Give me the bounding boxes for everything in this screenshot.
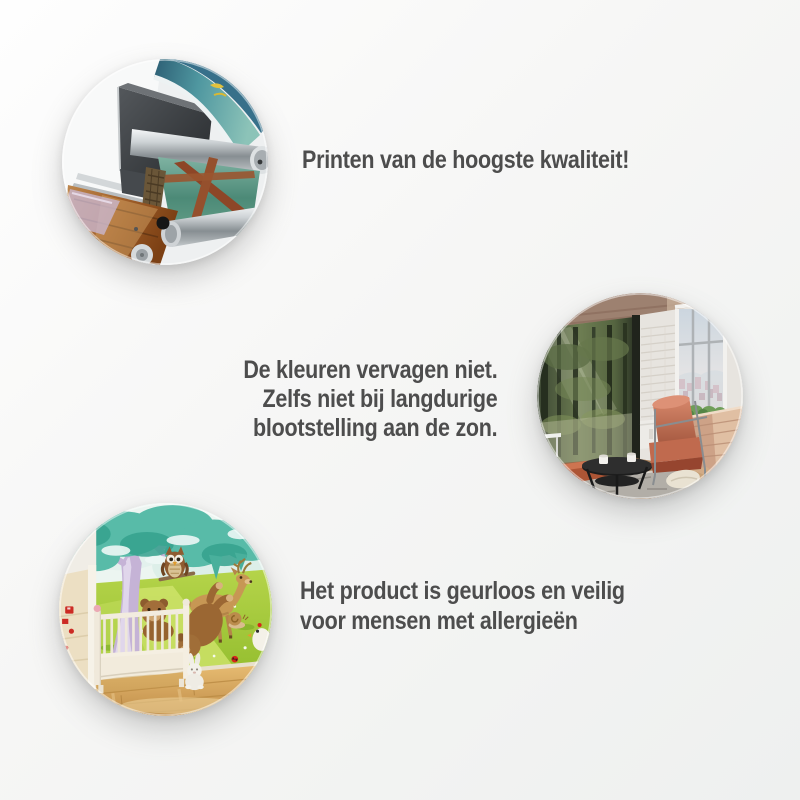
left-wall-shelf bbox=[59, 503, 96, 699]
window-frame-post bbox=[632, 315, 640, 463]
caption-line: De kleuren vervagen niet. bbox=[243, 356, 497, 385]
forest-wall-mural bbox=[537, 317, 634, 465]
living-room-illustration bbox=[537, 293, 743, 499]
product-benefits-graphic: Printen van de hoogste kwaliteit! bbox=[0, 0, 800, 800]
pink-knob bbox=[94, 605, 101, 612]
photo-nursery-animal-mural bbox=[59, 503, 272, 716]
photo-printing-machine bbox=[62, 59, 268, 265]
photo-living-room-forest-mural bbox=[537, 293, 743, 499]
nursery-illustration bbox=[59, 503, 272, 716]
caption-line: Zelfs niet bij langdurige bbox=[243, 385, 497, 414]
caption-print-quality: Printen van de hoogste kwaliteit! bbox=[302, 146, 629, 175]
printing-machine-illustration bbox=[62, 59, 268, 265]
caption-line: Het product is geurloos en veilig bbox=[300, 576, 625, 606]
caption-line: blootstelling aan de zon. bbox=[243, 414, 497, 443]
caption-line: Printen van de hoogste kwaliteit! bbox=[302, 146, 629, 175]
mural-ladybug bbox=[231, 656, 238, 663]
caption-no-fading: De kleuren vervagen niet. Zelfs niet bij… bbox=[243, 356, 497, 443]
caption-line: voor mensen met allergieën bbox=[300, 606, 625, 636]
caption-odorless-safe: Het product is geurloos en veilig voor m… bbox=[300, 576, 625, 636]
